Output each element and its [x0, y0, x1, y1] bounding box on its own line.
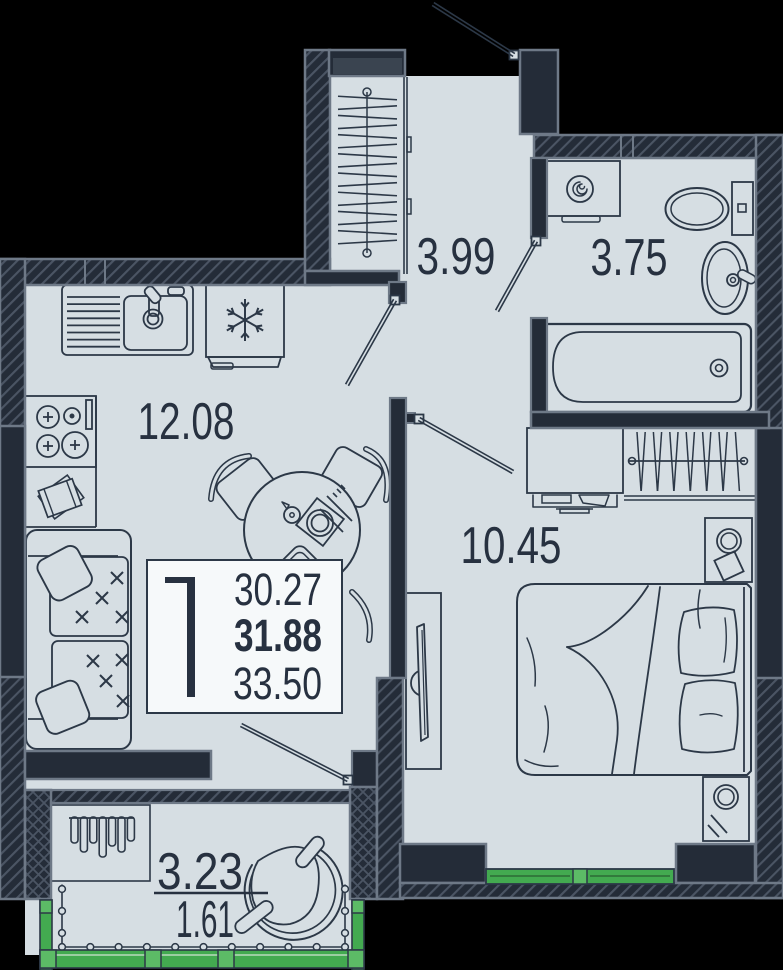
svg-text:30.27: 30.27: [234, 564, 322, 615]
svg-text:10.45: 10.45: [461, 517, 562, 575]
svg-text:1.61: 1.61: [176, 891, 234, 949]
svg-text:31.88: 31.88: [234, 610, 322, 661]
svg-text:3.75: 3.75: [591, 229, 668, 287]
svg-text:3.99: 3.99: [417, 228, 496, 286]
svg-text:33.50: 33.50: [233, 658, 322, 709]
svg-text:12.08: 12.08: [138, 393, 235, 451]
